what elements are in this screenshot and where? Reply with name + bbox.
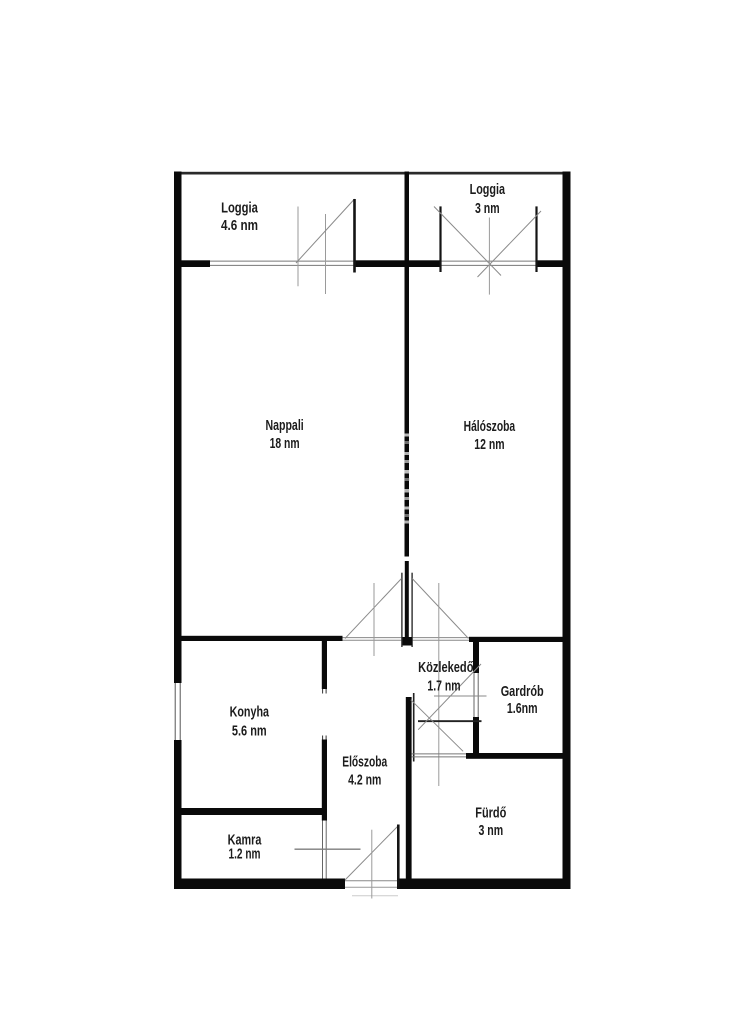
svg-text:1.6nm: 1.6nm (507, 700, 538, 717)
svg-text:1.2 nm: 1.2 nm (229, 846, 261, 863)
svg-text:4.6 nm: 4.6 nm (221, 217, 258, 234)
svg-text:Hálószoba: Hálószoba (464, 418, 516, 435)
svg-text:Loggia: Loggia (470, 181, 506, 198)
svg-text:Fürdő: Fürdő (475, 805, 506, 822)
svg-text:3 nm: 3 nm (478, 822, 503, 839)
svg-text:Közlekedő: Közlekedő (418, 659, 473, 676)
svg-text:3 nm: 3 nm (475, 200, 500, 217)
svg-text:Konyha: Konyha (230, 704, 270, 721)
svg-text:12 nm: 12 nm (474, 436, 504, 453)
svg-text:Gardrób: Gardrób (501, 683, 544, 700)
svg-text:4.2 nm: 4.2 nm (348, 771, 381, 788)
svg-text:18 nm: 18 nm (270, 435, 300, 452)
svg-text:5.6 nm: 5.6 nm (232, 722, 267, 739)
svg-text:Nappali: Nappali (266, 417, 304, 434)
svg-text:1.7 nm: 1.7 nm (427, 678, 460, 695)
svg-text:Előszoba: Előszoba (342, 754, 387, 771)
svg-text:Loggia: Loggia (221, 200, 258, 217)
